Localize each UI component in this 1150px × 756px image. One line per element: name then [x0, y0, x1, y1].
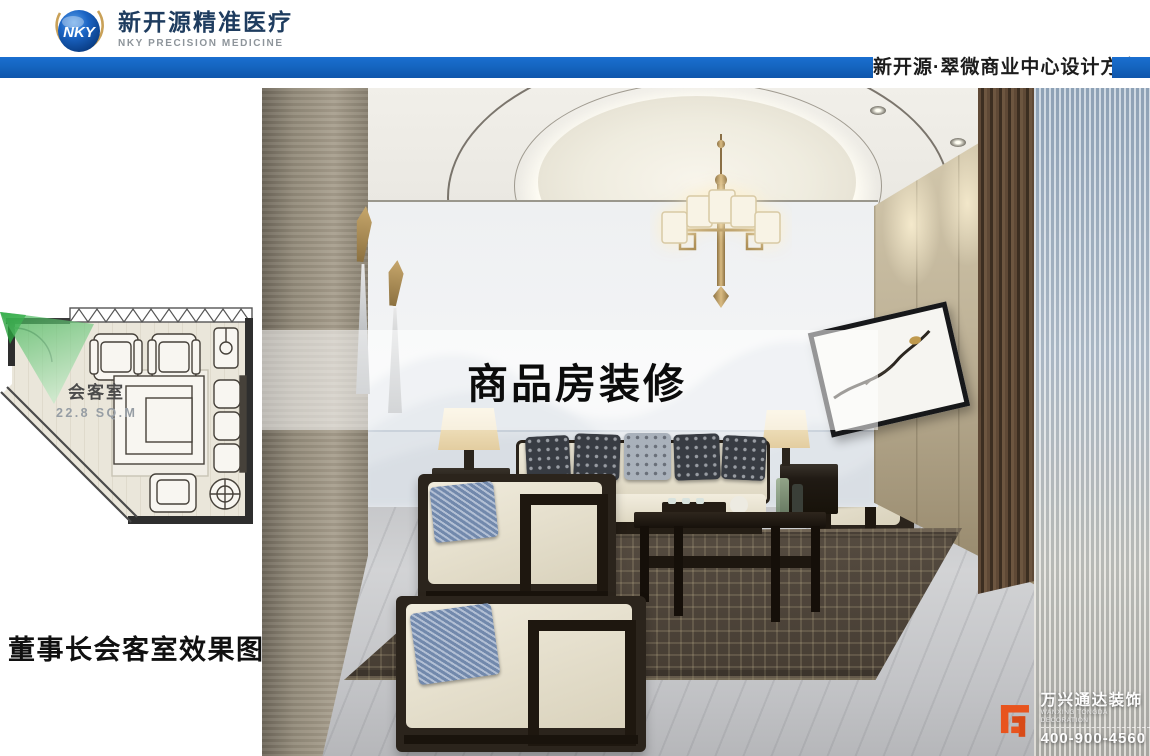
lamp-stem-right: [782, 448, 790, 466]
render-caption: 董事长会客室效果图: [8, 628, 265, 667]
coffee-table: [634, 512, 826, 622]
watermark-band: 商品房装修: [262, 330, 878, 430]
lamp-stem-left: [464, 450, 474, 470]
armchair-left-back: [418, 474, 616, 608]
svg-text:NKY: NKY: [63, 24, 97, 41]
sheer-curtain: [1034, 88, 1150, 756]
nky-logo-text: 新开源精准医疗 NKY PRECISION MEDICINE: [118, 9, 293, 49]
company-name-cn: 新开源精准医疗: [118, 9, 293, 35]
title-bar-right-segment: [1112, 57, 1150, 78]
company-name-en: NKY PRECISION MEDICINE: [118, 38, 293, 49]
vendor-phone: 400-900-4560: [1041, 730, 1150, 748]
render-image: 商品房装修 万兴通达装饰 WANXING TONGDA DECORATION 4…: [262, 88, 1150, 756]
floor-plan: 会客室 22.8 SQ.M: [0, 292, 256, 528]
downlight-icon: [870, 106, 886, 115]
downlight-icon: [950, 138, 966, 147]
vendor-name-en: WANXING TONGDA DECORATION: [1041, 709, 1150, 728]
nky-sphere-icon: NKY: [54, 5, 104, 57]
plan-room-name: 会客室: [68, 382, 125, 402]
vendor-logo-icon: [1000, 700, 1034, 740]
vendor-name-cn: 万兴通达装饰: [1041, 692, 1150, 709]
armchair-left-front: [396, 596, 646, 752]
watermark-text: 商品房装修: [453, 350, 687, 410]
title-bar-left-segment: [0, 57, 873, 78]
plan-room-area: 22.8 SQ.M: [56, 406, 137, 420]
slide-root: NKY 新开源精准医疗 NKY PRECISION MEDICINE 新开源·翠…: [0, 0, 1150, 756]
chandelier-icon: [650, 134, 792, 312]
vendor-logo: 万兴通达装饰 WANXING TONGDA DECORATION 400-900…: [1000, 692, 1150, 748]
title-bar-text: 新开源·翠微商业中心设计方案: [873, 55, 1112, 80]
